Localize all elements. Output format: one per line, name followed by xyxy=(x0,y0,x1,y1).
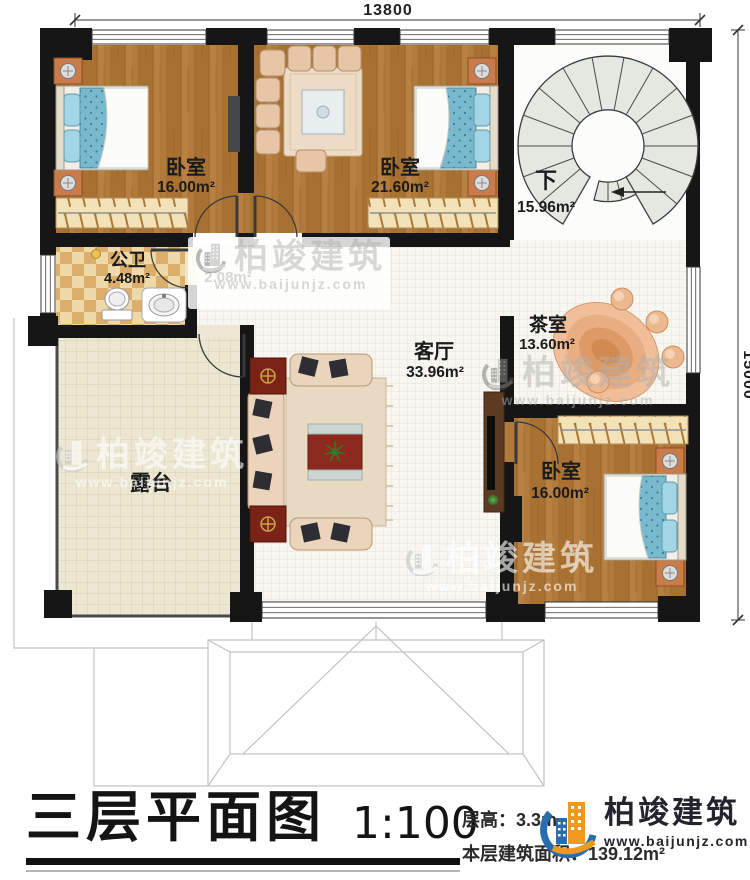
stairwell-label: 下 xyxy=(535,168,557,193)
title-underline-thin xyxy=(26,870,460,872)
terrace-door-floor xyxy=(197,325,242,338)
wardrobe xyxy=(56,198,188,228)
bedroom3-label: 卧室 xyxy=(541,459,581,483)
side-table xyxy=(250,506,286,542)
tearoom-area: 13.60m² xyxy=(519,336,575,353)
stairwell-area: 15.96m² xyxy=(517,199,575,216)
passage-floor xyxy=(500,240,514,316)
bedroom1-label: 卧室 xyxy=(166,155,206,179)
bedroom1-area: 16.00m² xyxy=(157,179,215,196)
stool xyxy=(587,371,609,393)
side-table xyxy=(250,358,286,394)
drawing-title: 三层平面图 xyxy=(26,790,326,845)
double-bed xyxy=(56,86,148,170)
sink xyxy=(142,288,186,322)
company-name: 柏竣建筑 xyxy=(604,796,749,830)
title-underline-thick xyxy=(26,858,460,865)
wall-tv xyxy=(514,496,522,542)
nightstand xyxy=(656,448,684,474)
nightstand xyxy=(54,58,82,84)
company-website: www.baijunjz.com xyxy=(604,833,749,849)
stool xyxy=(646,311,668,333)
coffee-table xyxy=(308,424,362,480)
floor-plan-page: 13800 15000 卧室 16.00m² 卧室 21.60m² 下 15.9… xyxy=(0,0,750,880)
double-bed xyxy=(604,474,686,560)
tv-cabinet xyxy=(484,392,504,512)
stool xyxy=(611,288,633,310)
drawing-scale: 1:100 xyxy=(352,798,479,849)
bedroom3-area: 16.00m² xyxy=(531,485,589,502)
nightstand xyxy=(656,560,684,586)
door-strip xyxy=(238,193,254,233)
watermark-box xyxy=(188,237,390,309)
nightstand xyxy=(468,58,496,84)
bedroom2-label: 卧室 xyxy=(380,155,420,179)
wardrobe xyxy=(368,198,498,228)
floor-plan-canvas: 13800 15000 卧室 16.00m² 卧室 21.60m² 下 15.9… xyxy=(0,0,750,880)
dimension-top-label: 13800 xyxy=(363,2,413,19)
tearoom-label: 茶室 xyxy=(529,313,567,336)
sofa-set xyxy=(256,46,362,172)
nightstand xyxy=(468,170,496,196)
stool xyxy=(662,346,684,368)
double-bed xyxy=(414,86,498,170)
terrace-label: 露台 xyxy=(130,471,172,495)
dimension-top: 13800 xyxy=(70,2,705,27)
nightstand xyxy=(54,170,82,196)
bathroom-label: 公卫 xyxy=(110,250,146,270)
dimension-right-label: 15000 xyxy=(740,350,750,400)
company-logo: 柏竣建筑 www.baijunjz.com xyxy=(540,796,749,858)
wardrobe xyxy=(558,416,688,444)
toilet xyxy=(102,288,132,320)
living-area: 33.96m² xyxy=(406,364,464,381)
brand-logo-icon xyxy=(540,796,600,858)
dimension-right: 15000 xyxy=(731,25,750,625)
bathroom-area: 4.48m² xyxy=(104,271,150,287)
living-label: 客厅 xyxy=(413,339,454,363)
bedroom2-area: 21.60m² xyxy=(371,179,429,196)
